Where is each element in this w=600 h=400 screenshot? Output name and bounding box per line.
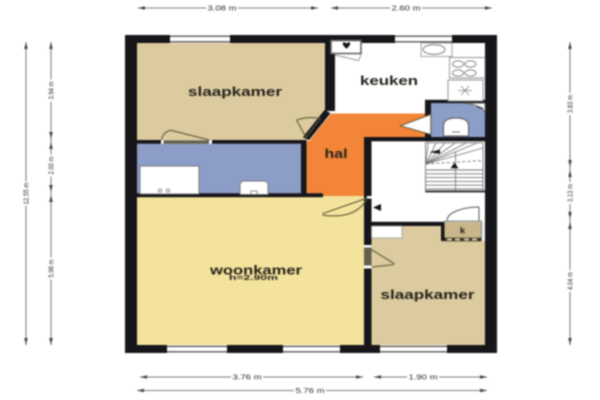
svg-text:hal: hal [325,147,348,161]
svg-text:3.83 m: 3.83 m [566,95,575,113]
svg-text:3.13 m: 3.13 m [566,184,575,202]
svg-text:h=2.90m: h=2.90m [229,275,278,282]
svg-text:12.55 m: 12.55 m [22,183,31,205]
svg-text:k: k [460,226,466,237]
svg-text:2.00 m: 2.00 m [47,157,56,175]
svg-text:keuken: keuken [360,74,418,88]
svg-text:2.60 m: 2.60 m [392,4,421,13]
svg-text:slaapkamer: slaapkamer [188,85,282,99]
svg-text:slaapkamer: slaapkamer [381,288,475,302]
svg-text:3.94 m: 3.94 m [47,82,56,100]
svg-text:3.08 m: 3.08 m [208,4,237,13]
svg-text:5.98 m: 5.98 m [47,260,56,278]
svg-text:4.04 m: 4.04 m [566,272,575,290]
svg-text:5.76 m: 5.76 m [296,386,325,395]
svg-text:3.76 m: 3.76 m [233,373,262,382]
svg-text:1.90 m: 1.90 m [409,373,438,382]
